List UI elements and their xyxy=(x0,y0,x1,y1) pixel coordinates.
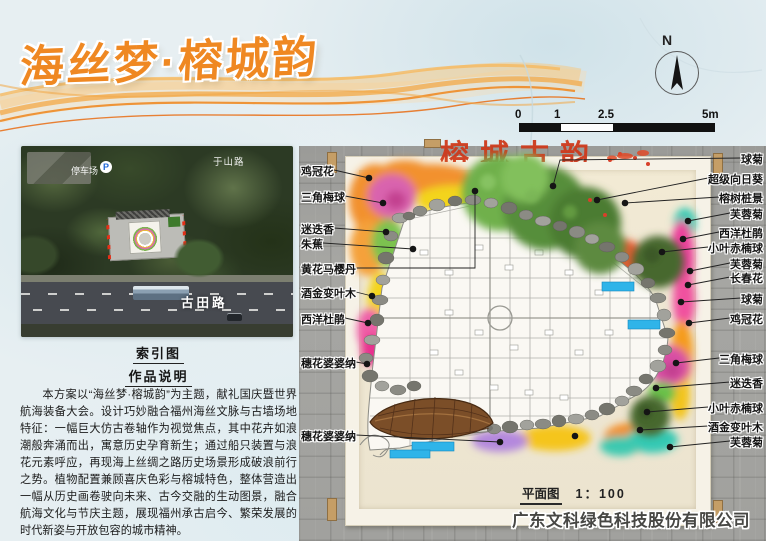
road-edge xyxy=(21,324,293,337)
parking-label: 停车场 xyxy=(71,164,98,177)
plant-label: 穗花婆婆纳 xyxy=(301,428,356,444)
plan-scale-text: 1：100 xyxy=(576,487,626,501)
plant-label: 小叶赤楠球 xyxy=(708,400,763,416)
tree-canopy xyxy=(21,234,61,276)
plan-panel: 榕城古韵 xyxy=(299,146,766,541)
poster-title: 海丝梦·榕城韵 xyxy=(18,21,321,96)
plant-label: 芙蓉菊 xyxy=(730,206,763,222)
north-label: N xyxy=(662,32,672,48)
plan-caption-text: 平面图 xyxy=(520,487,562,505)
plant-label: 西洋杜鹃 xyxy=(301,311,345,327)
company-name: 广东文科绿色科技股份有限公司 xyxy=(512,507,764,531)
index-map-caption-text: 索引图 xyxy=(133,346,184,364)
index-map-caption: 索引图 xyxy=(20,343,297,362)
compass-icon xyxy=(655,51,699,95)
road-name-label: 古田路 xyxy=(181,292,228,311)
lane-markings xyxy=(33,309,293,311)
plant-label: 朱蕉 xyxy=(301,236,323,252)
plant-label: 长春花 xyxy=(730,270,763,286)
description-body: 本方案以“海丝梦·榕城韵”为主题，献礼国庆暨世界航海装备大会。设计巧妙融合福州海… xyxy=(20,387,297,540)
plant-label: 迷迭香 xyxy=(730,375,763,391)
description-heading: 作品说明 xyxy=(20,366,297,385)
poster: 海丝梦·榕城韵 N 0 1 2.5 5m xyxy=(0,0,766,541)
mini-plan-card xyxy=(128,220,162,254)
plant-label: 酒金变叶木 xyxy=(708,419,763,435)
scale-tick: 5m xyxy=(702,109,719,121)
plant-label: 黄花马樱丹 xyxy=(301,261,356,277)
street-name-label: 于山路 xyxy=(213,154,245,168)
plant-label: 迷迭香 xyxy=(301,221,334,237)
scale-tick: 1 xyxy=(554,109,560,121)
scale-bar xyxy=(519,123,715,132)
plant-label: 榕树桩景 xyxy=(719,190,763,206)
satellite-index-map: 于山路 停车场 P 古田路 xyxy=(21,146,293,337)
plant-label: 球菊 xyxy=(741,151,763,167)
scale-bar-segment xyxy=(561,124,613,131)
scale-tick: 2.5 xyxy=(598,109,614,121)
plan-drawing-layer xyxy=(299,146,766,541)
plant-label: 小叶赤楠球 xyxy=(708,240,763,256)
green-patch xyxy=(168,216,181,227)
scale-bar-segment xyxy=(613,124,714,131)
tree-canopy xyxy=(173,238,225,278)
plant-label: 三角梅球 xyxy=(301,189,345,205)
sidewalk xyxy=(21,275,293,282)
description-heading-text: 作品说明 xyxy=(125,369,191,387)
plant-label: 鸡冠花 xyxy=(730,311,763,327)
plant-label: 芙蓉菊 xyxy=(730,434,763,450)
plan-caption: 平面图1：100 xyxy=(520,483,626,502)
plant-label: 鸡冠花 xyxy=(301,163,334,179)
scale-tick: 0 xyxy=(515,109,521,121)
plant-label: 球菊 xyxy=(741,291,763,307)
scale-bar-segment xyxy=(520,124,561,131)
plant-label: 超级向日葵 xyxy=(708,171,763,187)
parking-icon: P xyxy=(100,161,112,173)
north-arrow-needle xyxy=(656,52,698,94)
plant-label: 西洋杜鹃 xyxy=(719,225,763,241)
plant-label: 穗花婆婆纳 xyxy=(301,355,356,371)
plant-label: 三角梅球 xyxy=(719,351,763,367)
car xyxy=(227,313,242,321)
plant-label: 酒金变叶木 xyxy=(301,285,356,301)
